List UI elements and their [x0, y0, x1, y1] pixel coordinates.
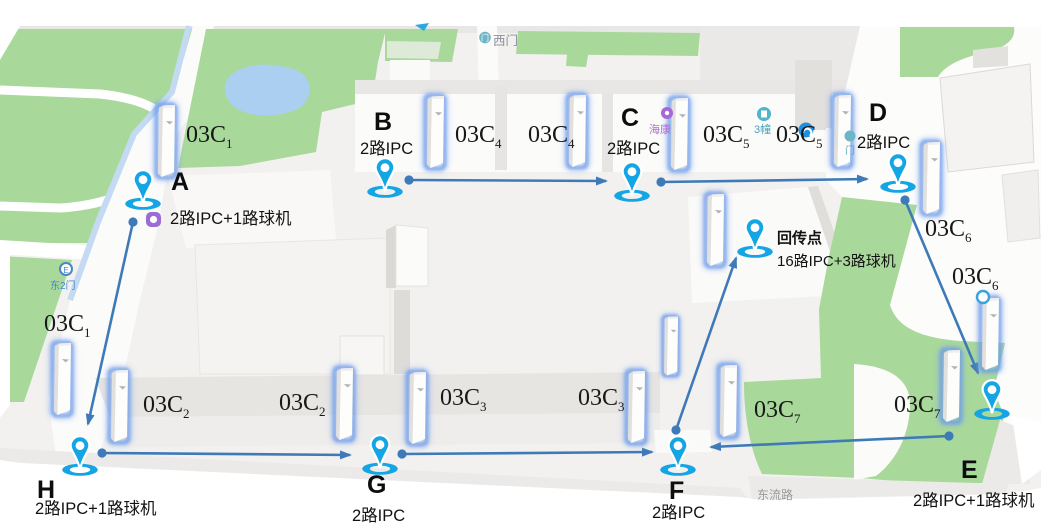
svg-text:门: 门: [481, 33, 489, 43]
svg-text:E: E: [63, 266, 68, 275]
